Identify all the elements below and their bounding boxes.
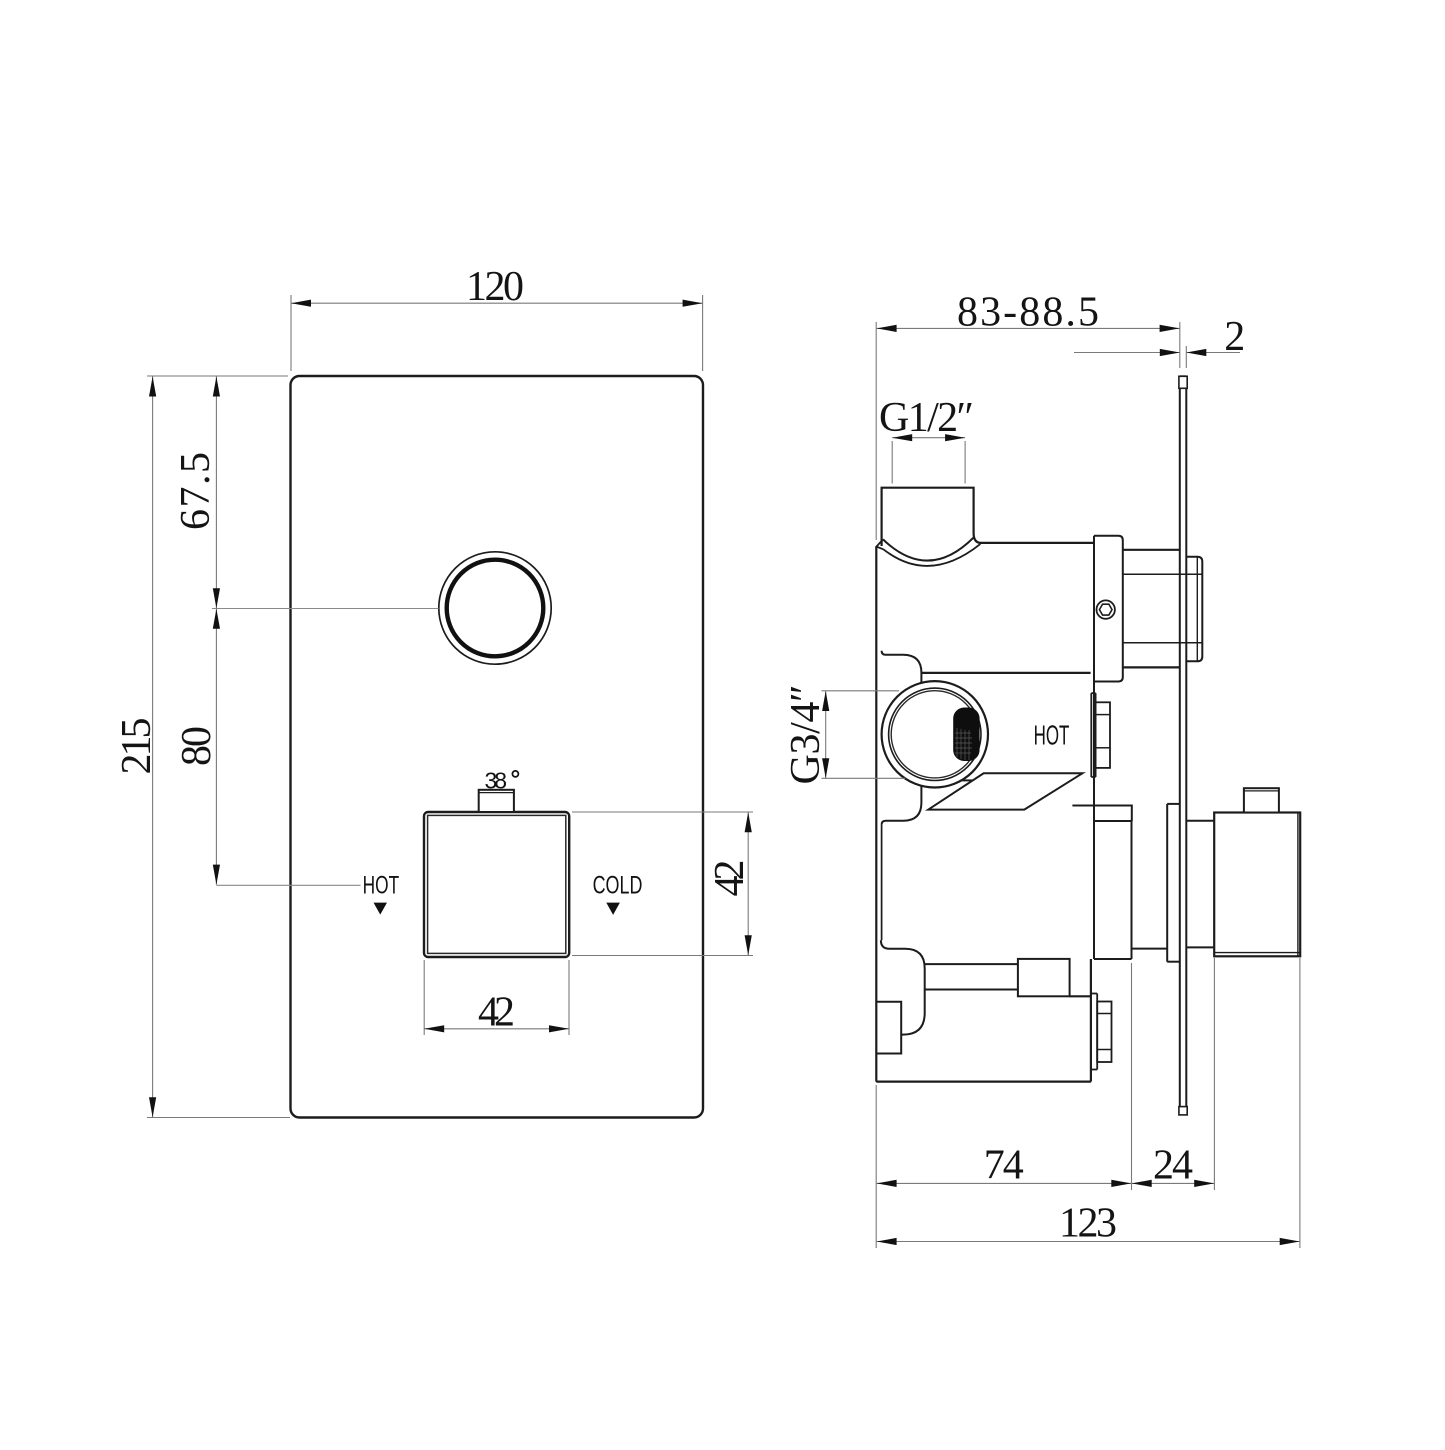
svg-text:G3/4″: G3/4″: [783, 685, 829, 785]
svg-text:67.5: 67.5: [173, 452, 219, 530]
svg-text:24: 24: [1153, 1143, 1193, 1189]
svg-text:215: 215: [114, 718, 160, 775]
svg-text:HOT: HOT: [1034, 719, 1070, 750]
svg-text:123: 123: [1059, 1201, 1117, 1247]
svg-text:HOT: HOT: [363, 871, 400, 899]
svg-text:38: 38: [485, 768, 508, 794]
svg-text:42: 42: [478, 990, 515, 1036]
svg-text:42: 42: [707, 860, 753, 897]
svg-text:G1/2″: G1/2″: [879, 395, 974, 441]
svg-text:80: 80: [174, 726, 220, 766]
svg-text:2: 2: [1224, 314, 1245, 360]
svg-text:120: 120: [466, 264, 524, 310]
svg-text:74: 74: [984, 1143, 1024, 1189]
svg-text:COLD: COLD: [593, 871, 643, 899]
